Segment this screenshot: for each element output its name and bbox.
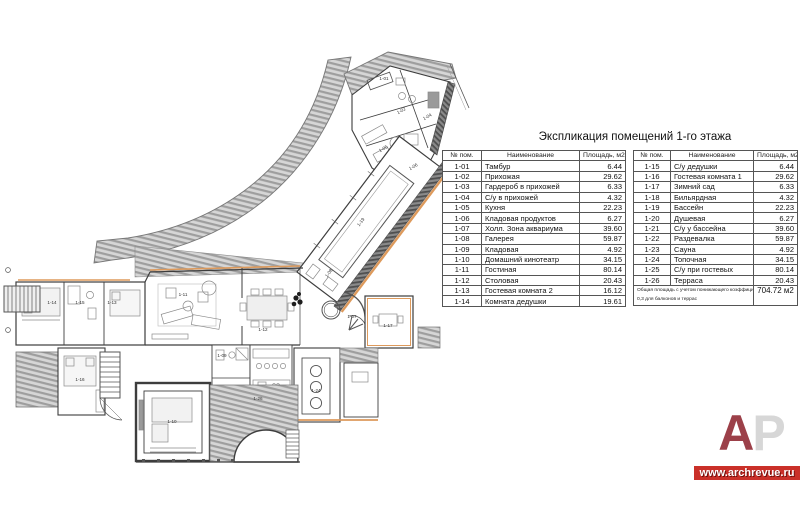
column-header: Наименование [482, 151, 580, 161]
room-number: 1-11 [443, 265, 482, 275]
room-area: 22.23 [754, 202, 798, 212]
room-number: 1-18 [634, 192, 671, 202]
room-number: 1-16 [634, 171, 671, 181]
ar-logo: АР [706, 404, 796, 464]
column-header: Наименование [671, 151, 754, 161]
room-number: 1-12 [443, 275, 482, 285]
room-area: 80.14 [580, 265, 626, 275]
table-row: 1-15С/у дедушки6.44 [634, 161, 798, 171]
room-name: Сауна [671, 244, 754, 254]
room-name: Столовая [482, 275, 580, 285]
room-name: Кладовая продуктов [482, 213, 580, 223]
room-area: 29.62 [580, 171, 626, 181]
room-label: 1-13 [107, 300, 117, 305]
room-name: С/у при гостевых [671, 265, 754, 275]
room-label: 1-11 [179, 292, 188, 297]
floor-plan: 1-011-021-041-051-061-191-081-071-171-14… [0, 0, 470, 500]
room-area: 6.33 [580, 182, 626, 192]
room-name: Гостиная [482, 265, 580, 275]
room-number: 1-19 [634, 202, 671, 212]
room-area: 6.33 [754, 182, 798, 192]
room-number: 1-10 [443, 254, 482, 264]
room-name: Кухня [482, 202, 580, 212]
table-row: 1-24Топочная34.15 [634, 254, 798, 264]
room-number: 1-14 [443, 296, 482, 306]
floor-plan-svg: 1-011-021-041-051-061-191-081-071-171-14… [0, 0, 470, 500]
room-name: Бильярдная [671, 192, 754, 202]
room-name: Душевая [671, 213, 754, 223]
table-row: 1-18Бильярдная4.32 [634, 192, 798, 202]
table-row: 1-26Терраса20.43 [634, 275, 798, 285]
room-area: 80.14 [754, 265, 798, 275]
explication-table-2: № пом.НаименованиеПлощадь, м21-15С/у дед… [633, 150, 798, 306]
room-area: 6.44 [580, 161, 626, 171]
room-area: 20.43 [580, 275, 626, 285]
table-row: 1-19Бассейн22.23 [634, 202, 798, 212]
room-label: 1-09 [217, 353, 227, 358]
ar-logo-letter-a: А [718, 405, 752, 461]
table-row: 1-12Столовая20.43 [443, 275, 626, 285]
room-name: Тамбур [482, 161, 580, 171]
room-area: 6.44 [754, 161, 798, 171]
room-area: 20.43 [754, 275, 798, 285]
column-header: № пом. [443, 151, 482, 161]
table-row: 1-04С/у в прихожей4.32 [443, 192, 626, 202]
table-row: 1-20Душевая6.27 [634, 213, 798, 223]
room-label: 1-24 [311, 388, 321, 393]
room-area: 22.23 [580, 202, 626, 212]
room-area: 59.87 [580, 234, 626, 244]
room-number: 1-08 [443, 234, 482, 244]
room-number: 1-24 [634, 254, 671, 264]
table-row: 1-21С/у у бассейна39.60 [634, 223, 798, 233]
explication-table-1: № пом.НаименованиеПлощадь, м21-01Тамбур6… [442, 150, 626, 307]
room-name: Гардероб в прихожей [482, 182, 580, 192]
table-row: 1-05Кухня22.23 [443, 202, 626, 212]
table-row: 1-23Сауна4.92 [634, 244, 798, 254]
room-number: 1-07 [443, 223, 482, 233]
total-area-value: 704.72 м2 [754, 286, 798, 306]
room-label: 1-12 [258, 327, 268, 332]
room-name: Топочная [671, 254, 754, 264]
room-name: Комната дедушки [482, 296, 580, 306]
room-area: 29.62 [754, 171, 798, 181]
room-number: 1-15 [634, 161, 671, 171]
room-area: 34.15 [754, 254, 798, 264]
table-row: 1-17Зимний сад6.33 [634, 182, 798, 192]
room-name: С/у в прихожей [482, 192, 580, 202]
room-area: 59.87 [754, 234, 798, 244]
room-number: 1-21 [634, 223, 671, 233]
room-number: 1-23 [634, 244, 671, 254]
table-row: 1-14Комната дедушки19.61 [443, 296, 626, 306]
plant-symbol [292, 292, 303, 306]
room-label: 1-10 [167, 419, 177, 424]
room-name: Терраса [671, 275, 754, 285]
ar-logo-letter-p: Р [752, 405, 783, 461]
room-number: 1-20 [634, 213, 671, 223]
page-title: Экспликация помещений 1-го этажа [470, 131, 800, 143]
room-area: 6.27 [580, 213, 626, 223]
room-label: 1-01 [379, 76, 389, 81]
room-number: 1-25 [634, 265, 671, 275]
room-name: Домашний кинотеатр [482, 254, 580, 264]
table-row: 1-08Галерея59.87 [443, 234, 626, 244]
table-row: 1-02Прихожая29.62 [443, 171, 626, 181]
table-row: 1-13Гостевая комната 216.12 [443, 286, 626, 296]
room-name: Зимний сад [671, 182, 754, 192]
room-name: Кладовая [482, 244, 580, 254]
room-name: Гостевая комната 2 [482, 286, 580, 296]
table-row: 1-22Раздевалка59.87 [634, 234, 798, 244]
table-row: 1-01Тамбур6.44 [443, 161, 626, 171]
room-area: 16.12 [580, 286, 626, 296]
column-header: Площадь, м2 [754, 151, 798, 161]
room-name: Холл. Зона аквариума [482, 223, 580, 233]
room-number: 1-26 [634, 275, 671, 285]
room-label: 1-14 [47, 300, 57, 305]
room-name: С/у у бассейна [671, 223, 754, 233]
table-row: 1-10Домашний кинотеатр34.15 [443, 254, 626, 264]
room-area: 4.32 [580, 192, 626, 202]
room-area: 4.32 [754, 192, 798, 202]
site-watermark: www.archrevue.ru [694, 466, 800, 480]
room-name: Бассейн [671, 202, 754, 212]
curved-terrace [94, 57, 351, 277]
room-area: 4.92 [580, 244, 626, 254]
boiler-room [294, 348, 340, 422]
room-number: 1-09 [443, 244, 482, 254]
room-area: 19.61 [580, 296, 626, 306]
room-label: 1-07 [347, 314, 357, 319]
room-name: Раздевалка [671, 234, 754, 244]
room-number: 1-17 [634, 182, 671, 192]
room-number: 1-03 [443, 182, 482, 192]
room-area: 6.27 [754, 213, 798, 223]
table-row: 1-07Холл. Зона аквариума39.60 [443, 223, 626, 233]
room-area: 39.60 [754, 223, 798, 233]
room-label: 1-15 [75, 300, 85, 305]
main-room-band [16, 266, 440, 348]
room-number: 1-01 [443, 161, 482, 171]
table-row: 1-11Гостиная80.14 [443, 265, 626, 275]
room-label: 1-26 [253, 396, 263, 401]
column-header: № пом. [634, 151, 671, 161]
table-row: 1-25С/у при гостевых80.14 [634, 265, 798, 275]
room-area: 4.92 [754, 244, 798, 254]
table-footer-row: Общая площадь с учетом понижающего коэфф… [634, 286, 798, 306]
room-name: Прихожая [482, 171, 580, 181]
room-name: Галерея [482, 234, 580, 244]
room-area: 34.15 [580, 254, 626, 264]
room-number: 1-02 [443, 171, 482, 181]
table-row: 1-16Гостевая комната 129.62 [634, 171, 798, 181]
table-row: 1-09Кладовая4.92 [443, 244, 626, 254]
room-number: 1-04 [443, 192, 482, 202]
room-number: 1-06 [443, 213, 482, 223]
room-area: 39.60 [580, 223, 626, 233]
table-row: 1-03Гардероб в прихожей6.33 [443, 182, 626, 192]
room-label: 1-17 [383, 323, 393, 328]
room-number: 1-13 [443, 286, 482, 296]
table-row: 1-06Кладовая продуктов6.27 [443, 213, 626, 223]
total-area-caption: Общая площадь с учетом понижающего коэфф… [634, 286, 754, 306]
left-terrace [16, 352, 58, 407]
room-number: 1-22 [634, 234, 671, 244]
room-name: Гостевая комната 1 [671, 171, 754, 181]
column-header: Площадь, м2 [580, 151, 626, 161]
room-name: С/у дедушки [671, 161, 754, 171]
room-label: 1-16 [75, 377, 85, 382]
room-number: 1-05 [443, 202, 482, 212]
